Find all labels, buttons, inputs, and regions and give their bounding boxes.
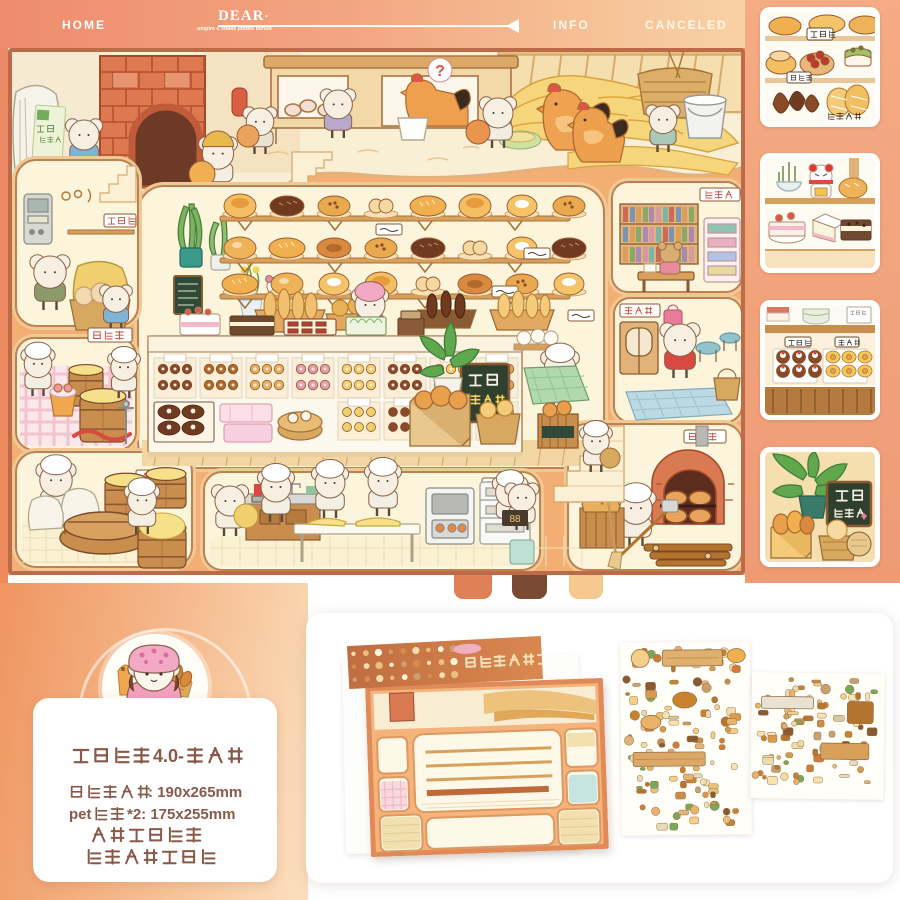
svg-text:pet: pet xyxy=(69,806,92,823)
svg-text:: 190x265mm: : 190x265mm xyxy=(148,784,242,801)
svg-text:4.0-: 4.0- xyxy=(153,746,184,766)
svg-text:88: 88 xyxy=(509,514,521,525)
svg-text:?: ? xyxy=(435,63,445,80)
svg-text:*2: 175x255mm: *2: 175x255mm xyxy=(127,806,235,823)
